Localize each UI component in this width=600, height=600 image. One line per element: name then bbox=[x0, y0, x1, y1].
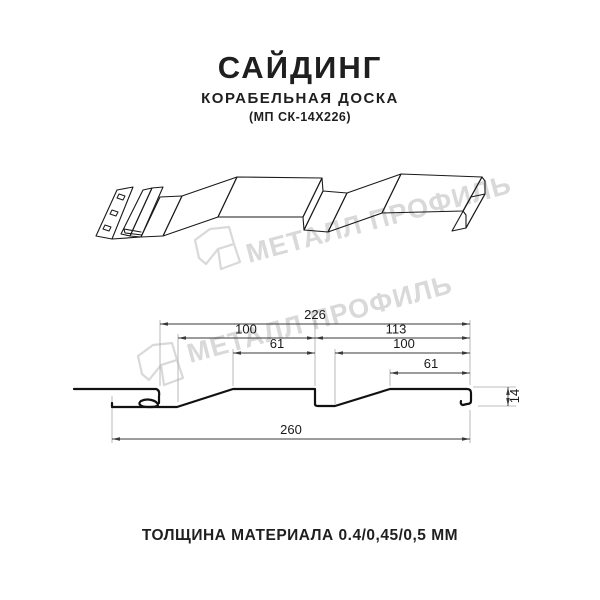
dim-label-61-left: 61 bbox=[270, 336, 284, 351]
cross-section-profile bbox=[74, 389, 471, 407]
dim-label-14: 14 bbox=[507, 389, 522, 403]
dim-label-226: 226 bbox=[304, 307, 326, 322]
dim-label-113: 113 bbox=[386, 322, 407, 337]
dim-label-61-right: 61 bbox=[424, 356, 438, 371]
product-diagram-page: САЙДИНГ КОРАБЕЛЬНАЯ ДОСКА (МП СК-14Х226)… bbox=[0, 0, 600, 600]
technical-drawing-canvas: МЕТАЛЛ ПРОФИЛЬ МЕТАЛЛ ПРОФИЛЬ bbox=[0, 0, 600, 600]
dim-label-100-left: 100 bbox=[235, 322, 257, 337]
material-thickness-note: ТОЛЩИНА МАТЕРИАЛА 0.4/0,45/0,5 ММ bbox=[0, 527, 600, 545]
metall-profil-logo-icon bbox=[138, 343, 183, 385]
dim-label-100-right: 100 bbox=[393, 336, 415, 351]
watermark-section: МЕТАЛЛ ПРОФИЛЬ bbox=[138, 269, 456, 385]
metall-profil-logo-icon bbox=[195, 227, 240, 269]
dim-label-260: 260 bbox=[280, 422, 302, 437]
